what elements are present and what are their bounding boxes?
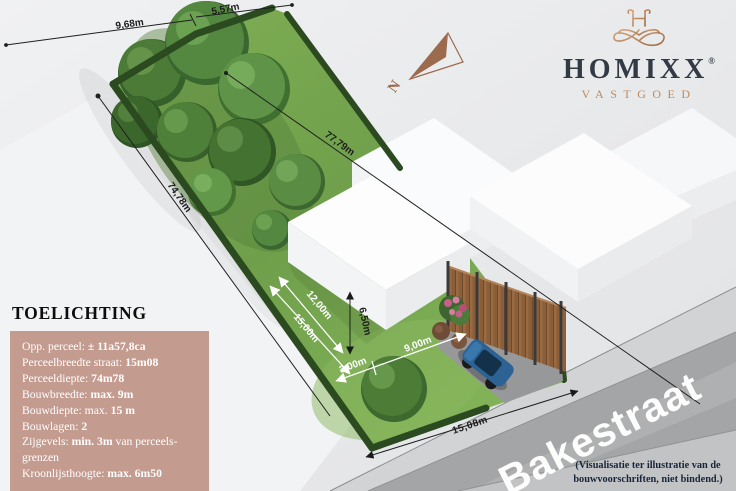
legend-panel: Opp. perceel: ± 11a57,8ca Perceelbreedte… [10,331,209,491]
legend-label: Opp. perceel: [22,340,85,353]
legend-value: ± 11a57,8ca [88,340,146,353]
legend-value: 15 m [111,404,135,417]
legend-row: Opp. perceel: ± 11a57,8ca [22,339,197,355]
legend-value: 74m78 [91,372,124,385]
legend-title: TOELICHTING [12,303,147,324]
legend-value: max. 9m [90,388,133,401]
legend-label: Perceelbreedte straat: [22,356,122,369]
legend-row: Zijgevels: min. 3m van perceels-grenzen [22,434,197,466]
visualization-canvas: 9,68m 5,57m 74,78m 77,79m 12,00m 15,00m … [0,0,736,491]
legend-row: Bouwbreedte: max. 9m [22,387,197,403]
legend-row: Perceelbreedte straat: 15m08 [22,355,197,371]
disclaimer-line-2: bouwvoorschriften, niet bindend.) [562,473,734,487]
front-garden-tree [361,356,427,422]
legend-value: max. 6m50 [107,467,162,480]
disclaimer-line-1: (Visualisatie ter illustratie van de [562,459,734,473]
legend-row: Bouwdiepte: max. 15 m [22,403,197,419]
legend-row: Bouwlagen: 2 [22,419,197,435]
legend-value: 15m08 [125,356,158,369]
legend-label: Bouwdiepte: max. [22,404,108,417]
legend-row: Kroonlijsthoogte: max. 6m50 [22,466,197,482]
disclaimer-note: (Visualisatie ter illustratie van de bou… [562,459,734,487]
brand-subtitle: VASTGOED [548,87,730,102]
legend-label: Bouwbreedte: [22,388,88,401]
registered-mark: ® [708,56,715,66]
legend-label: Perceeldiepte: [22,372,88,385]
legend-label: Kroonlijsthoogte: [22,467,104,480]
legend-value: min. 3m [72,435,113,448]
legend-label: Zijgevels: [22,435,69,448]
legend-label: Bouwlagen: [22,420,78,433]
legend-value: 2 [81,420,87,433]
homixx-monogram-icon [607,8,671,54]
brand-text: HOMIXX [563,54,708,85]
legend-row: Perceeldiepte: 74m78 [22,371,197,387]
brand-name: HOMIXX® [548,56,730,84]
homixx-logo: HOMIXX® VASTGOED [548,8,730,102]
